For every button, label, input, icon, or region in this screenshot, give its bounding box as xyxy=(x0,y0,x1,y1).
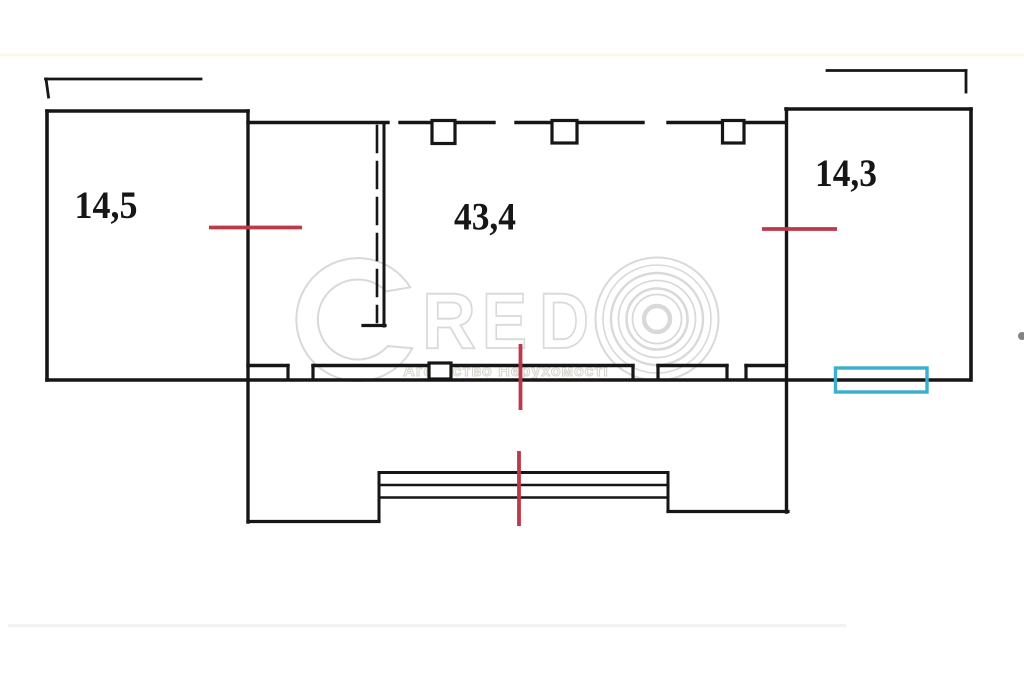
svg-text:43,4: 43,4 xyxy=(454,196,516,239)
svg-text:14,3: 14,3 xyxy=(815,152,877,195)
svg-text:D: D xyxy=(539,276,589,365)
svg-text:R: R xyxy=(422,276,476,365)
svg-text:14,5: 14,5 xyxy=(75,184,138,227)
